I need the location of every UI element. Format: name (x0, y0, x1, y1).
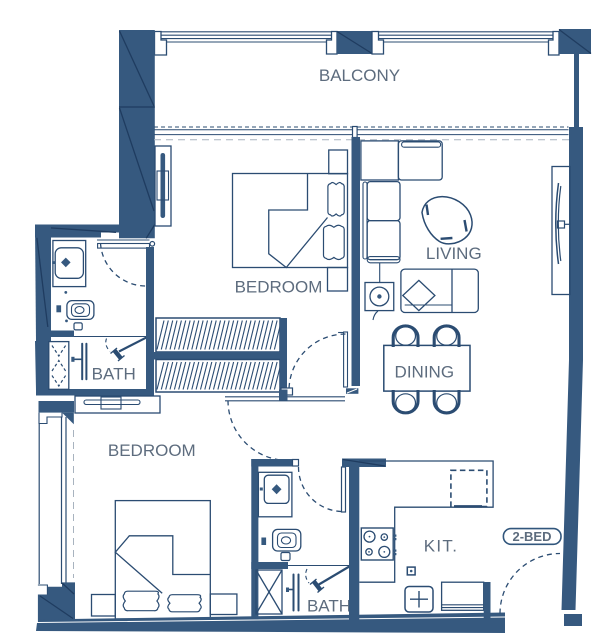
svg-text:BATH: BATH (307, 597, 351, 616)
svg-text:BEDROOM: BEDROOM (235, 278, 323, 297)
svg-text:DINING: DINING (395, 363, 455, 382)
svg-text:BEDROOM: BEDROOM (108, 441, 196, 460)
svg-text:BATH: BATH (92, 365, 136, 384)
svg-text:KIT.: KIT. (424, 537, 459, 556)
svg-text:2-BED: 2-BED (512, 529, 551, 544)
svg-text:LIVING: LIVING (426, 244, 482, 263)
svg-text:BALCONY: BALCONY (319, 66, 400, 85)
